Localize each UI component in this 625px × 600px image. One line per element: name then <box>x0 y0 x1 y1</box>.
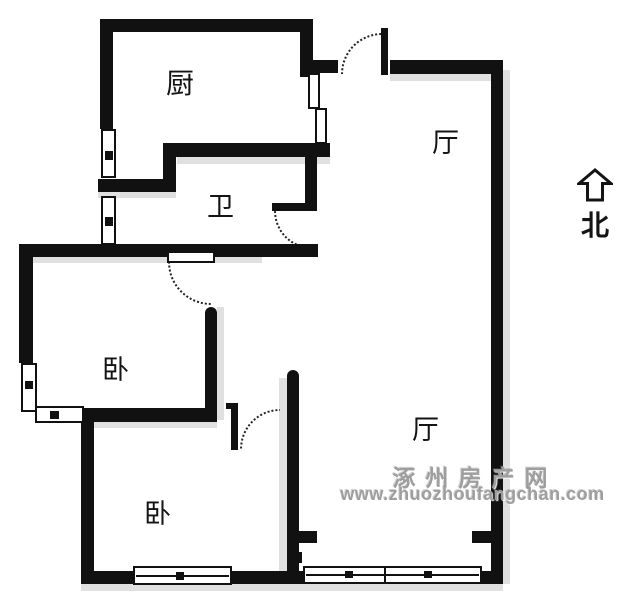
bedroom1-door-frame <box>167 251 215 263</box>
window-kitchen-pass-upper <box>308 73 320 109</box>
window-latch <box>105 217 113 226</box>
wall-shadow <box>215 257 262 263</box>
wall-shadow <box>81 584 503 591</box>
window-latch <box>25 381 33 389</box>
north-arrow-icon <box>577 168 613 202</box>
wall-shadow <box>503 70 510 584</box>
wall-bedroom1-right <box>205 307 217 422</box>
wall-kitchen-left <box>100 19 113 129</box>
window-latch <box>345 571 353 578</box>
wall-shadow <box>279 378 287 572</box>
window-latch <box>50 411 59 419</box>
entry-door-arc <box>341 33 382 74</box>
bedroom2-door-arc <box>240 409 280 449</box>
room-label-bedroom-lower: 卧 <box>144 501 171 528</box>
wall-bath-upper-left <box>98 179 176 192</box>
wall-shadow <box>390 74 503 81</box>
window-latch <box>105 151 113 160</box>
room-label-hall-lower: 厅 <box>412 417 439 444</box>
wall-right-outer <box>491 60 503 584</box>
wall-bedroom1-bottom <box>83 408 217 422</box>
bedroom1-door-arc <box>168 262 211 305</box>
room-label-bath: 卫 <box>207 194 234 221</box>
wall-bath-top <box>163 143 330 157</box>
wall-entry-door-jamb <box>313 60 338 73</box>
wall-stub-left <box>299 531 317 543</box>
room-label-bedroom-upper: 卧 <box>102 357 129 384</box>
compass-north: 北 <box>577 168 613 244</box>
wall-shadow <box>83 422 217 428</box>
bedroom2-door-leaf <box>231 403 238 450</box>
entry-door-leaf <box>381 28 388 75</box>
wall-left-outer <box>19 244 33 363</box>
wall-bottom-left <box>81 571 133 584</box>
room-label-hall-upper: 厅 <box>432 130 459 157</box>
floor-plan: 厨 卫 厅 厅 卧 卧 北 涿州房产网 www.zhuozhoufangchan… <box>0 0 625 600</box>
wall-hall-top <box>390 60 503 74</box>
room-label-kitchen: 厨 <box>166 70 194 98</box>
wall-stub-right <box>472 531 491 543</box>
bedroom2-door-leaf-serif <box>226 403 237 409</box>
wall-kitchen-top <box>100 19 313 32</box>
wall-kitchen-right <box>300 19 313 77</box>
window-divider <box>384 567 386 583</box>
window-latch <box>176 572 184 580</box>
wall-pier <box>293 552 302 563</box>
watermark-site-url: www.zhuozhoufangchan.com <box>340 484 605 505</box>
compass-north-label: 北 <box>577 204 613 244</box>
window-kitchen-pass-lower <box>315 108 327 144</box>
window-bedroom1-corner <box>35 406 84 423</box>
wall-bedroom2-left <box>81 415 94 584</box>
window-mullion <box>306 574 479 576</box>
wall-shadow <box>19 257 167 263</box>
window-latch <box>424 571 432 578</box>
wall-bath-door-jamb <box>272 203 317 211</box>
wall-shadow <box>217 307 224 420</box>
